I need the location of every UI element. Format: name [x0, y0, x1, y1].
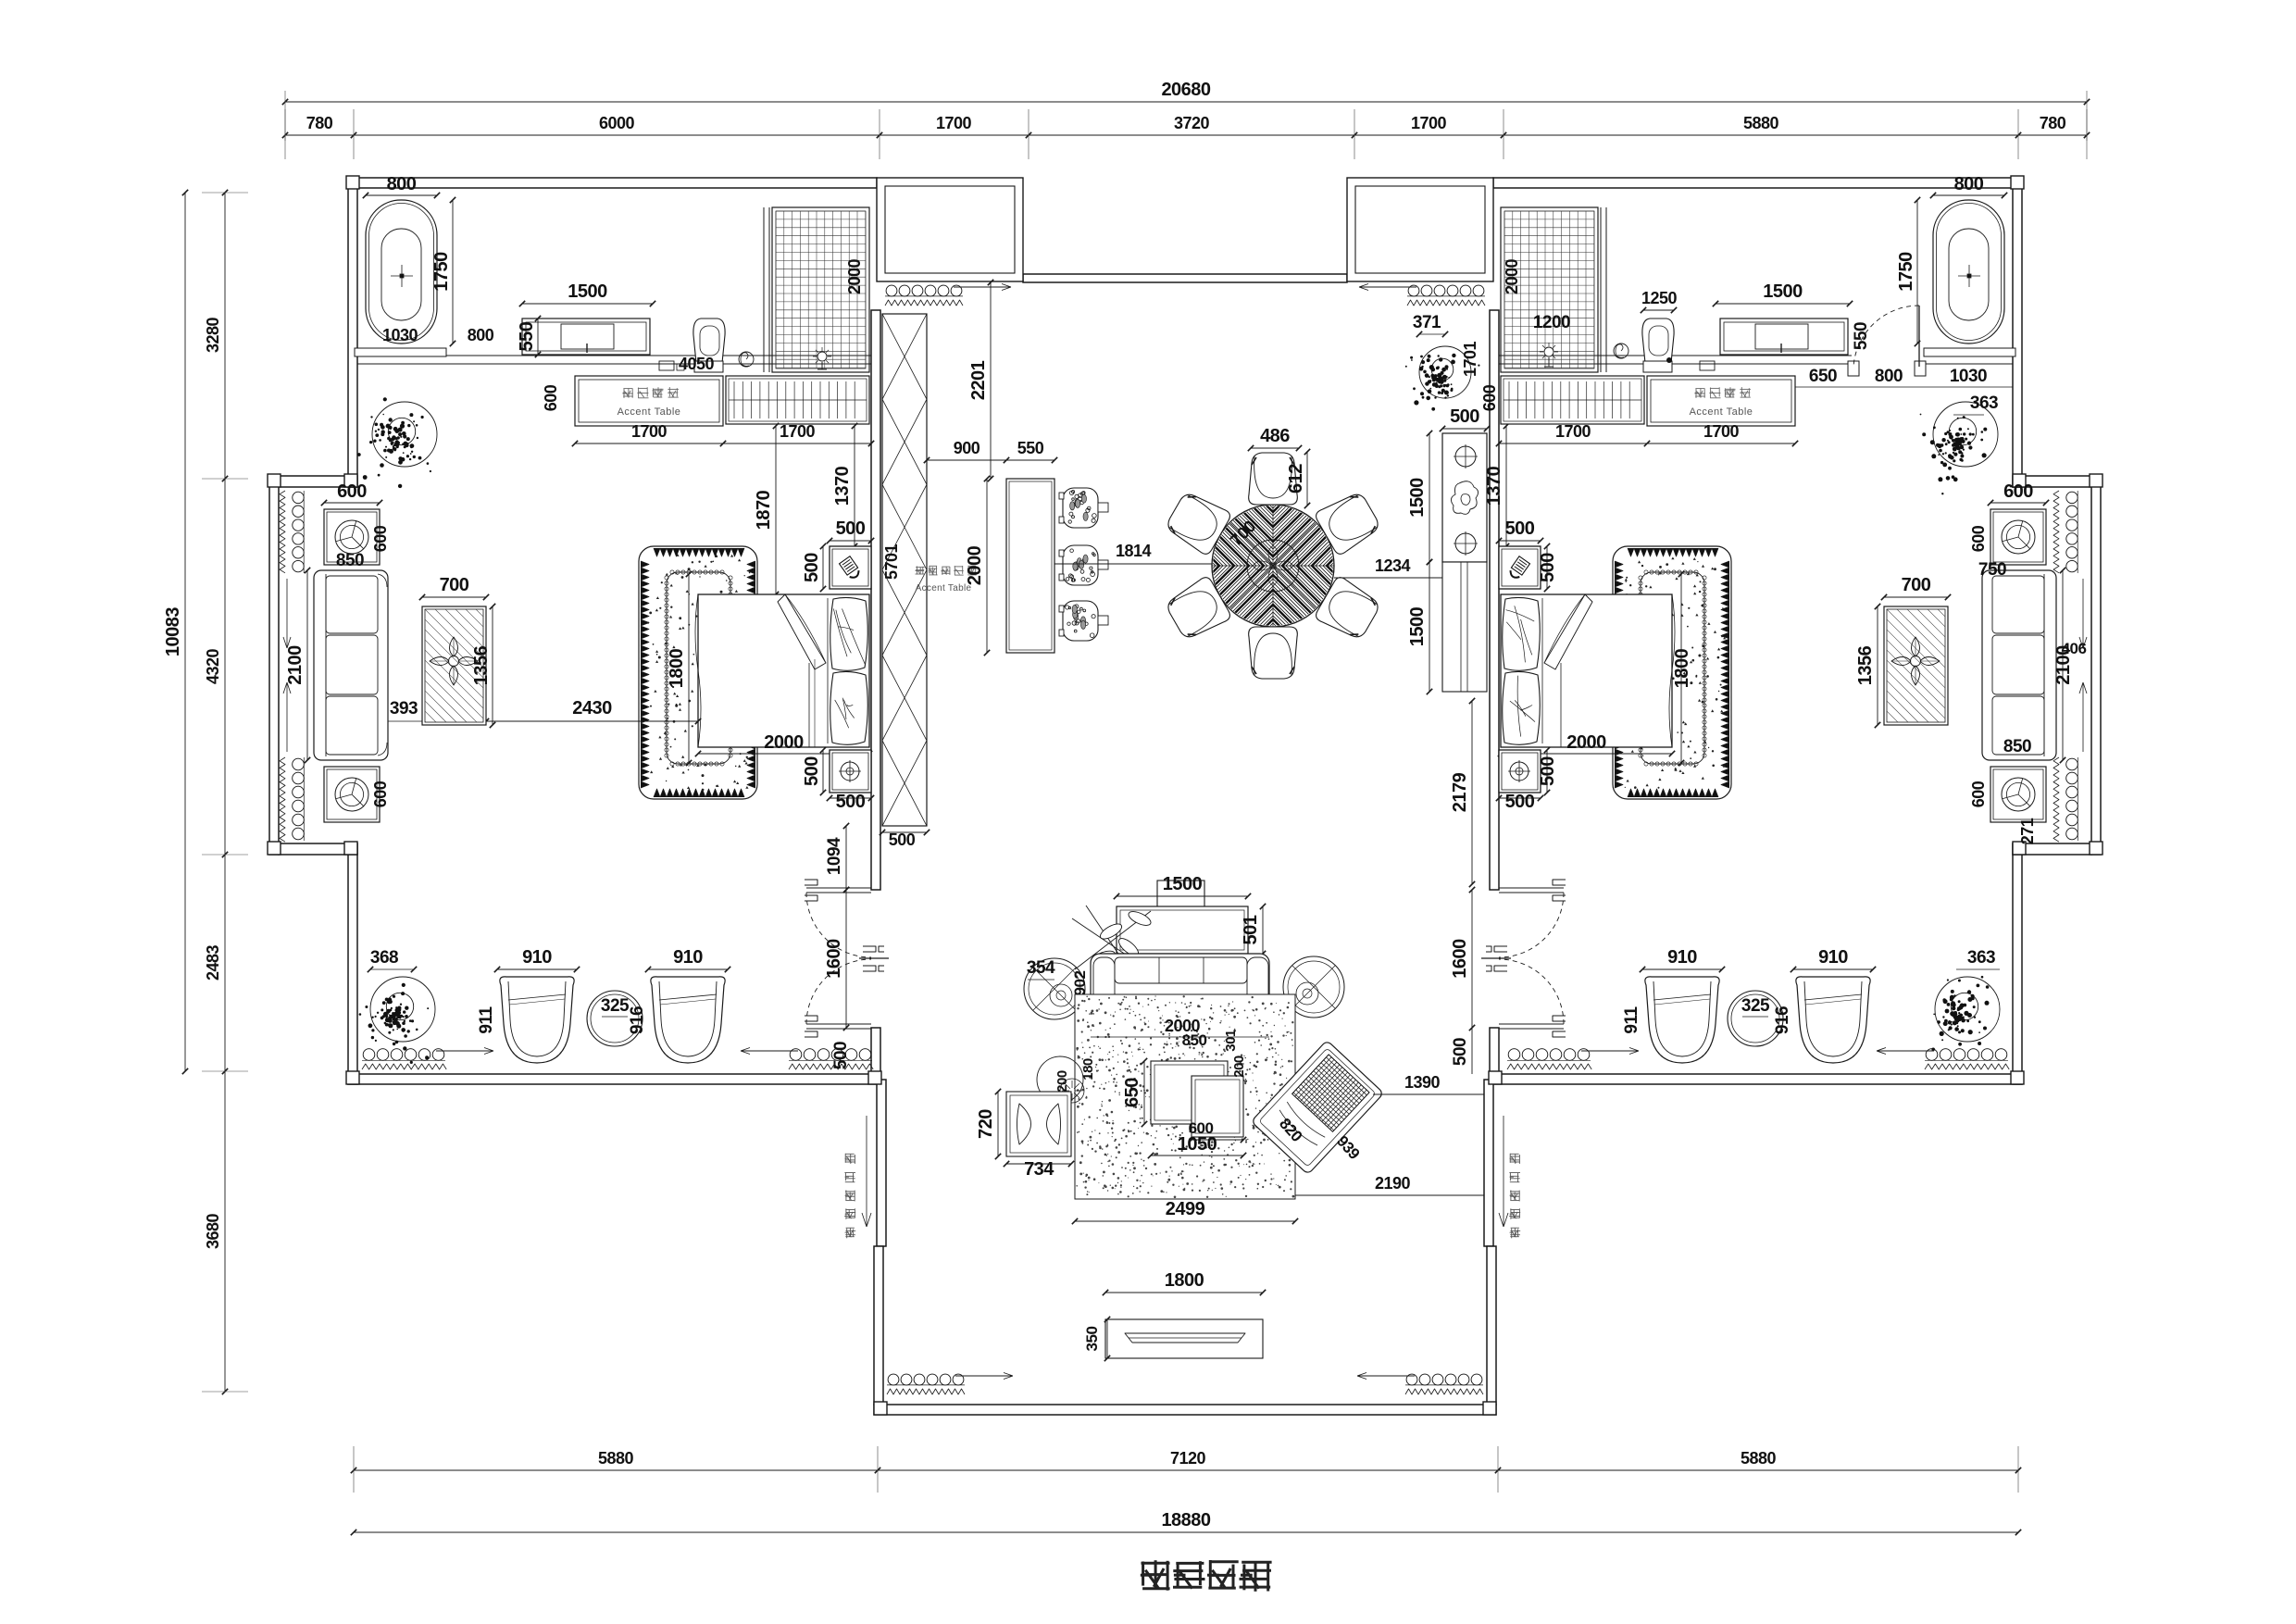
- svg-text:1370: 1370: [1484, 466, 1504, 506]
- svg-text:6000: 6000: [599, 114, 635, 132]
- svg-text:600: 600: [1969, 781, 1988, 807]
- svg-text:1750: 1750: [431, 252, 452, 292]
- svg-text:3680: 3680: [204, 1213, 222, 1249]
- svg-text:550: 550: [1852, 322, 1871, 350]
- svg-text:2201: 2201: [968, 360, 989, 400]
- svg-text:5880: 5880: [1741, 1449, 1777, 1468]
- svg-text:1700: 1700: [631, 422, 668, 441]
- svg-text:780: 780: [306, 114, 333, 132]
- svg-text:301: 301: [1223, 1030, 1239, 1052]
- svg-text:900: 900: [954, 439, 980, 457]
- svg-text:500: 500: [1450, 406, 1479, 427]
- svg-text:650: 650: [1122, 1078, 1142, 1107]
- svg-text:800: 800: [468, 326, 494, 344]
- svg-text:850: 850: [1182, 1031, 1207, 1049]
- svg-text:1800: 1800: [667, 648, 687, 688]
- svg-text:1700: 1700: [780, 422, 816, 441]
- svg-text:3720: 3720: [1174, 114, 1210, 132]
- svg-text:500: 500: [802, 553, 822, 582]
- svg-text:500: 500: [1505, 518, 1535, 539]
- svg-text:500: 500: [889, 831, 916, 849]
- svg-text:600: 600: [2003, 481, 2033, 502]
- svg-text:363: 363: [1967, 948, 1995, 968]
- svg-text:2190: 2190: [1375, 1174, 1411, 1193]
- svg-text:916: 916: [1773, 1006, 1792, 1034]
- svg-text:1500: 1500: [1763, 281, 1803, 302]
- svg-text:734: 734: [1024, 1159, 1054, 1180]
- svg-text:1700: 1700: [1555, 422, 1591, 441]
- svg-text:350: 350: [1083, 1327, 1101, 1352]
- svg-text:1500: 1500: [1407, 606, 1428, 646]
- svg-text:1356: 1356: [1855, 645, 1876, 685]
- svg-text:486: 486: [1260, 426, 1290, 446]
- svg-text:2483: 2483: [204, 944, 222, 981]
- svg-text:916: 916: [628, 1006, 647, 1034]
- svg-text:600: 600: [371, 525, 390, 552]
- svg-text:7120: 7120: [1170, 1449, 1206, 1468]
- svg-text:200: 200: [1231, 1056, 1247, 1078]
- svg-text:600: 600: [1969, 525, 1988, 552]
- svg-text:Accent Table: Accent Table: [618, 406, 681, 418]
- svg-text:5701: 5701: [882, 543, 901, 580]
- svg-text:1390: 1390: [1404, 1073, 1441, 1092]
- svg-text:1600: 1600: [1450, 939, 1470, 979]
- svg-text:1600: 1600: [824, 939, 844, 979]
- svg-text:910: 910: [673, 947, 703, 968]
- svg-text:750: 750: [1978, 560, 2006, 580]
- svg-text:2000: 2000: [1566, 732, 1606, 753]
- svg-text:1030: 1030: [382, 326, 418, 344]
- svg-text:600: 600: [337, 481, 367, 502]
- svg-text:4050: 4050: [679, 355, 715, 373]
- svg-text:354: 354: [1027, 958, 1055, 978]
- svg-text:2000: 2000: [845, 258, 864, 294]
- svg-text:1800: 1800: [1165, 1270, 1204, 1291]
- svg-text:850: 850: [2003, 737, 2031, 756]
- svg-text:1701: 1701: [1461, 341, 1479, 377]
- svg-text:500: 500: [1538, 553, 1558, 582]
- svg-text:1500: 1500: [1163, 874, 1203, 894]
- svg-text:501: 501: [1241, 915, 1261, 944]
- svg-text:720: 720: [976, 1109, 996, 1139]
- svg-text:911: 911: [1622, 1006, 1641, 1033]
- svg-text:500: 500: [836, 792, 866, 812]
- svg-text:363: 363: [1970, 394, 1998, 413]
- svg-text:1800: 1800: [1672, 648, 1692, 688]
- svg-text:1700: 1700: [936, 114, 972, 132]
- svg-text:550: 550: [1017, 439, 1044, 457]
- svg-text:700: 700: [1902, 575, 1931, 595]
- svg-text:325: 325: [601, 996, 630, 1016]
- svg-text:1370: 1370: [832, 466, 853, 506]
- svg-text:780: 780: [2040, 114, 2066, 132]
- svg-text:2000: 2000: [1503, 258, 1521, 294]
- svg-text:600: 600: [542, 384, 560, 411]
- svg-text:1500: 1500: [568, 281, 607, 302]
- svg-text:20680: 20680: [1161, 80, 1210, 100]
- svg-text:800: 800: [1875, 367, 1903, 386]
- svg-text:10083: 10083: [163, 607, 183, 656]
- svg-text:18880: 18880: [1161, 1510, 1210, 1530]
- svg-text:1700: 1700: [1703, 422, 1740, 441]
- svg-text:650: 650: [1809, 367, 1837, 386]
- svg-text:1050: 1050: [1178, 1134, 1217, 1155]
- svg-text:1870: 1870: [754, 490, 774, 530]
- svg-text:600: 600: [371, 781, 390, 807]
- svg-text:3280: 3280: [204, 317, 222, 353]
- svg-text:911: 911: [477, 1006, 496, 1033]
- svg-text:2430: 2430: [572, 698, 612, 718]
- svg-text:1814: 1814: [1116, 542, 1152, 560]
- svg-text:1700: 1700: [1411, 114, 1447, 132]
- svg-text:500: 500: [836, 518, 866, 539]
- svg-text:1250: 1250: [1641, 289, 1678, 307]
- svg-text:910: 910: [1818, 947, 1848, 968]
- svg-text:Accent Table: Accent Table: [916, 583, 972, 593]
- svg-text:368: 368: [370, 948, 398, 968]
- svg-text:2179: 2179: [1450, 772, 1470, 812]
- svg-text:2000: 2000: [965, 545, 985, 585]
- svg-text:500: 500: [1451, 1038, 1470, 1066]
- svg-text:910: 910: [522, 947, 552, 968]
- svg-text:393: 393: [390, 699, 418, 718]
- svg-text:1356: 1356: [471, 645, 492, 685]
- svg-text:4320: 4320: [204, 648, 222, 684]
- svg-text:1750: 1750: [1896, 252, 1916, 292]
- svg-text:325: 325: [1741, 996, 1770, 1016]
- svg-text:1234: 1234: [1375, 556, 1411, 575]
- svg-text:1200: 1200: [1533, 313, 1570, 332]
- svg-text:2100: 2100: [285, 645, 306, 685]
- svg-text:371: 371: [1413, 313, 1441, 332]
- svg-text:Accent Table: Accent Table: [1690, 406, 1753, 418]
- svg-text:500: 500: [802, 756, 822, 786]
- svg-text:902: 902: [1071, 971, 1089, 996]
- svg-text:2000: 2000: [764, 732, 804, 753]
- svg-text:800: 800: [1954, 174, 1984, 194]
- svg-text:850: 850: [336, 551, 364, 570]
- svg-text:1030: 1030: [1950, 367, 1987, 386]
- svg-text:550: 550: [517, 321, 537, 351]
- svg-text:5880: 5880: [598, 1449, 634, 1468]
- svg-text:271: 271: [2018, 818, 2037, 844]
- svg-text:1094: 1094: [825, 837, 844, 875]
- svg-text:5880: 5880: [1743, 114, 1779, 132]
- svg-text:910: 910: [1667, 947, 1697, 968]
- svg-text:612: 612: [1286, 464, 1306, 493]
- svg-text:700: 700: [440, 575, 469, 595]
- svg-text:500: 500: [1505, 792, 1535, 812]
- svg-text:500: 500: [1538, 756, 1558, 786]
- svg-text:406: 406: [2062, 640, 2087, 657]
- svg-text:2499: 2499: [1166, 1199, 1205, 1219]
- svg-text:1500: 1500: [1407, 478, 1428, 518]
- svg-text:800: 800: [387, 174, 417, 194]
- svg-text:600: 600: [1480, 384, 1499, 411]
